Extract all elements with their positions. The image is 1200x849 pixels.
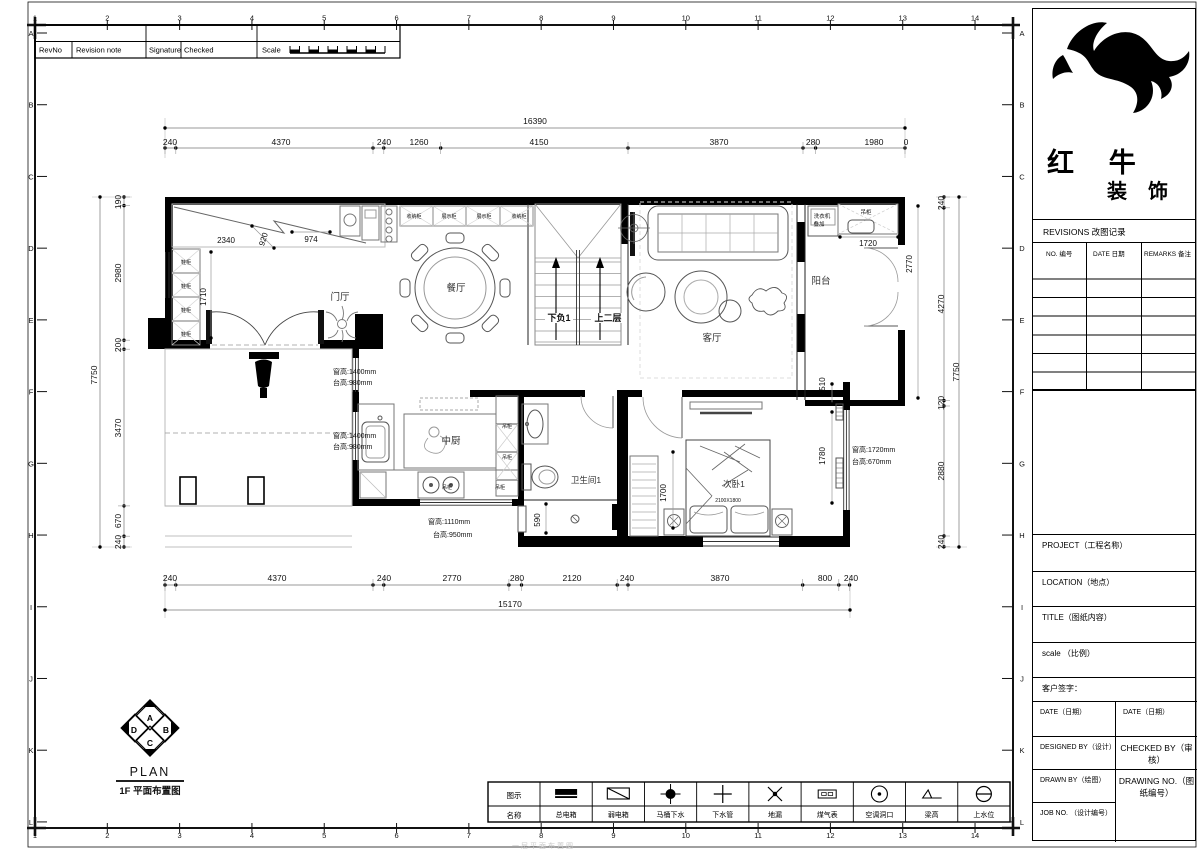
frame-row-label: C: [1019, 172, 1025, 181]
frame-row-label: H: [1019, 531, 1024, 540]
plan-label: 1700: [659, 484, 668, 502]
wardrobe: [630, 456, 658, 536]
plan-label: 鞋柜: [181, 259, 191, 266]
frame-row-label: L: [29, 818, 33, 827]
date-right-field: DATE（日期）: [1115, 701, 1197, 736]
checked-by-field: CHECKED BY（审核）: [1115, 736, 1197, 769]
kitchen-fixtures: [358, 396, 518, 498]
plan-label: 7750: [951, 362, 961, 381]
plan-label: 3870: [710, 137, 729, 147]
plan-label: 吊柜: [442, 484, 452, 491]
plan-label: 2120: [563, 573, 582, 583]
fixtures: [165, 202, 898, 547]
plan-label: 鞋柜: [181, 283, 191, 290]
frame-row-label: I: [1021, 603, 1023, 612]
plan-label: 510: [818, 377, 827, 391]
revisions-empty-rows: [1033, 261, 1195, 391]
legend-name: 下水管: [712, 810, 733, 819]
plan-label: 2770: [905, 255, 914, 273]
legend-name: 煤气表: [817, 810, 838, 819]
living-room-set: [618, 202, 792, 378]
scale-field: scale （比例）: [1033, 642, 1195, 677]
legend-header-icon: 图示: [507, 791, 522, 800]
entry-double-door: [206, 310, 324, 345]
plan-label: 2770: [443, 573, 462, 583]
plan-label: 670: [113, 514, 123, 528]
plan-label: 7750: [89, 365, 99, 384]
plan-label: 3870: [711, 573, 730, 583]
plan-label: 240: [377, 573, 391, 583]
plan-label: 鞋柜: [181, 331, 191, 338]
plan-label: 240: [620, 573, 634, 583]
plan-label: 4270: [936, 294, 946, 313]
location-field: LOCATION（地点）: [1033, 571, 1195, 606]
frame-row-label: E: [28, 316, 33, 325]
frame-row-label: C: [28, 172, 34, 181]
plan-label: 2880: [936, 461, 946, 480]
plan-label: 280: [510, 573, 524, 583]
plan-label: 吊柜: [860, 208, 872, 216]
scale-label: Scale: [262, 46, 281, 55]
plan-label: 吊柜: [502, 454, 512, 461]
revisions-header: REVISIONS 改图记录: [1033, 219, 1195, 243]
balcony-doors: [864, 248, 898, 326]
project-field: PROJECT（工程名称）: [1033, 534, 1195, 571]
legend-name: 空调洞口: [865, 810, 893, 819]
plan-label: 收纳柜: [406, 213, 421, 220]
date-left-field: DATE（日期）: [1033, 701, 1115, 736]
plan-label: 2340: [217, 236, 235, 245]
plan-label: 240: [113, 535, 123, 549]
plan-label: 1980: [865, 137, 884, 147]
plan-label: 吊柜: [502, 423, 512, 430]
title-field: TITLE（图纸内容）: [1033, 606, 1195, 642]
rev-col-remarks: REMARKS 备注: [1144, 248, 1191, 258]
floor-plan-canvas: 11223344556677889910101111121213131414AA…: [0, 0, 1200, 849]
compass-letter-d: D: [131, 725, 137, 735]
plan-label: 1720: [859, 239, 877, 248]
revno-label: RevNo: [39, 46, 62, 55]
plan-label: 240: [163, 573, 177, 583]
frame-row-label: B: [28, 101, 33, 110]
plan-label: 阳台: [811, 275, 830, 287]
legend-name: 上水位: [973, 810, 994, 819]
plan-label: 台高:980mm: [333, 378, 372, 387]
main-electric-box-icon: [555, 789, 577, 798]
revision-note-label: Revision note: [76, 46, 121, 55]
compass-letter-a: A: [147, 713, 153, 723]
plan-label: 4370: [268, 573, 287, 583]
plan-label: 门厅: [330, 291, 350, 303]
frame-row-label: D: [28, 244, 34, 253]
plan-label: 240: [936, 535, 946, 549]
frame-row-label: J: [29, 674, 33, 683]
plan-label: 鞋柜: [181, 307, 191, 314]
frame-row-label: D: [1019, 244, 1025, 253]
plan-label: 餐厅: [446, 282, 466, 294]
frame-row-label: K: [28, 746, 33, 755]
legend-header-name: 名称: [507, 810, 522, 820]
plan-label: 台高:670mm: [852, 457, 891, 466]
plan-label: 上二层: [594, 312, 621, 323]
checked-label: Checked: [184, 46, 214, 55]
frame-row-label: A: [1019, 29, 1024, 38]
legend-table: 图示 名称 总电箱弱电箱马桶下水下水管地漏煤气表空调洞口梁高上水位: [488, 782, 1010, 822]
drawn-by-field: DRAWN BY（绘图）: [1033, 769, 1115, 802]
bedroom-fixtures: [630, 397, 843, 536]
floor-plan-caption: 1F 平面布置图: [119, 785, 180, 797]
plan-label: 窗高:1400mm: [333, 431, 376, 440]
plan-label: 次卧1: [723, 479, 745, 489]
divider: [1141, 243, 1142, 391]
plan-label: 200: [113, 338, 123, 352]
plan-label: 2100X1800: [715, 498, 741, 504]
compass-letter-b: B: [163, 725, 169, 735]
frame-row-label: B: [1019, 101, 1024, 110]
frame-row-label: L: [1020, 818, 1024, 827]
frame-row-label: J: [1020, 674, 1024, 683]
graphic-scale-bar: [290, 46, 385, 53]
plan-label: 120: [936, 396, 946, 410]
orientation-compass-icon: A B C D: [121, 700, 179, 756]
plan-label: 展示柜: [476, 213, 491, 220]
tall-appliance-units: [340, 206, 397, 242]
stairs: [535, 204, 625, 345]
legend-name: 地漏: [768, 810, 782, 819]
plan-label: 280: [806, 137, 820, 147]
divider: [1086, 243, 1087, 391]
plan-label: 叠加: [813, 220, 824, 228]
brand-name-suffix: 装 饰: [1107, 175, 1176, 204]
revision-strip: RevNo Revision note Signature Checked Sc…: [35, 25, 400, 58]
plan-label: 240: [377, 137, 391, 147]
frame-row-label: F: [29, 388, 34, 397]
sheet-frame: [27, 2, 1196, 847]
entry-marker-icon: [249, 352, 279, 398]
frame-row-label: G: [1019, 459, 1025, 468]
frame-row-label: H: [28, 531, 33, 540]
frame-row-label: F: [1020, 388, 1025, 397]
plan-label: 展示柜: [441, 213, 456, 220]
plan-label: 洗衣机: [814, 212, 831, 220]
plan-label: 客厅: [702, 332, 722, 344]
plan-label: 台高:950mm: [433, 530, 472, 539]
frame-row-label: A: [28, 29, 33, 38]
compass-letter-c: C: [147, 738, 153, 748]
frame-row-label: G: [28, 459, 34, 468]
frame-row-label: E: [1019, 316, 1024, 325]
curtain-boxes: [836, 404, 843, 488]
job-no-field: JOB NO. （设计编号）: [1033, 802, 1115, 842]
plan-label: 窗高:1110mm: [428, 517, 470, 526]
plan-label: 800: [818, 573, 832, 583]
plan-label: 卫生间1: [571, 475, 602, 485]
drawing-sheet: { "sheet": { "rev_strip": {"rev_no":"Rev…: [0, 0, 1200, 849]
plan-label: 15170: [498, 599, 522, 609]
plan-label: 1710: [199, 288, 208, 306]
signature-label: Signature: [149, 46, 181, 55]
plan-label: 中厨: [441, 435, 461, 447]
edge-watermark: 一层平面布置图: [512, 841, 575, 849]
plan-label: 974: [304, 235, 318, 244]
plan-label: 台高:980mm: [333, 442, 372, 451]
rev-col-no: NO. 编号: [1046, 248, 1072, 258]
plan-label: 4370: [272, 137, 291, 147]
plan-label: 下负1: [547, 312, 570, 323]
legend-name: 梁高: [925, 810, 939, 819]
plan-label: 4150: [530, 137, 549, 147]
legend-name: 总电箱: [556, 810, 577, 819]
plan-label: 0: [904, 137, 909, 147]
plan-label: 收纳柜: [511, 213, 526, 220]
plant: [326, 306, 358, 342]
plan-label: 16390: [523, 116, 547, 126]
designed-by-field: DESIGNED BY（设计）: [1033, 736, 1115, 769]
rev-col-date: DATE 日期: [1093, 248, 1125, 258]
plan-label: 1780: [818, 447, 827, 465]
brand-logo-icon: [1033, 9, 1195, 145]
plan-label: 1260: [410, 137, 429, 147]
plan-annotations: 1639024043702401260415038702801980024043…: [89, 116, 961, 609]
plan-label: 590: [533, 513, 542, 527]
legend-name: 马桶下水: [657, 810, 685, 819]
frame-row-label: I: [30, 603, 32, 612]
plan-label: 窗高:1400mm: [333, 367, 376, 376]
plan-label: 240: [163, 137, 177, 147]
plan-label: 240: [844, 573, 858, 583]
customer-signature-field: 客户签字：: [1033, 677, 1195, 701]
plan-label: 吊柜: [495, 484, 505, 491]
plan-label: 2980: [113, 263, 123, 282]
plan-title: PLAN: [130, 765, 171, 779]
plan-label: 3470: [113, 418, 123, 437]
plan-label: 窗高:1720mm: [852, 445, 895, 454]
plan-label: 190: [113, 195, 123, 209]
legend-name: 弱电箱: [608, 810, 629, 819]
bathroom-fixtures: [518, 396, 613, 532]
plan-label: 240: [936, 196, 946, 210]
frame-row-label: K: [1019, 746, 1024, 755]
drawing-no-field: DRAWING NO.（图纸编号）: [1115, 769, 1197, 842]
title-block: 红 牛 装 饰 REVISIONS 改图记录 NO. 编号 DATE 日期 RE…: [1032, 8, 1196, 841]
